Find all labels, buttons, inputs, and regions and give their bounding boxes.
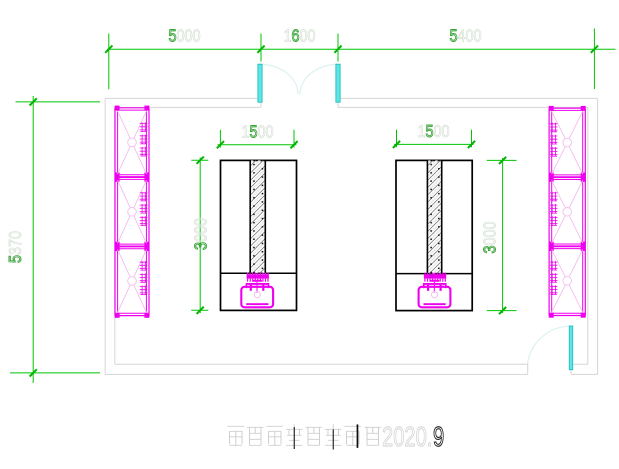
svg-text:5: 5	[250, 122, 258, 142]
svg-text:2020.: 2020.	[382, 422, 432, 453]
svg-text:0: 0	[193, 26, 201, 46]
svg-text:0: 0	[191, 218, 211, 226]
svg-text:0: 0	[308, 26, 316, 46]
svg-text:5: 5	[426, 122, 434, 142]
svg-text:0: 0	[434, 122, 442, 142]
svg-text:4: 4	[458, 26, 466, 46]
svg-text:3: 3	[191, 242, 211, 250]
svg-text:1: 1	[418, 122, 426, 142]
svg-text:5: 5	[169, 26, 177, 46]
svg-text:5: 5	[6, 255, 26, 263]
svg-text:1: 1	[242, 122, 250, 142]
svg-text:0: 0	[177, 26, 185, 46]
svg-text:0: 0	[185, 26, 193, 46]
svg-text:7: 7	[6, 239, 26, 247]
svg-text:5: 5	[450, 26, 458, 46]
svg-text:0: 0	[442, 122, 450, 142]
svg-text:0: 0	[6, 231, 26, 239]
svg-text:0: 0	[258, 122, 266, 142]
svg-text:9: 9	[433, 422, 444, 453]
svg-text:3: 3	[480, 245, 500, 253]
svg-text:0: 0	[480, 237, 500, 245]
svg-text:6: 6	[292, 26, 300, 46]
svg-text:0: 0	[480, 229, 500, 237]
svg-text:0: 0	[474, 26, 482, 46]
svg-text:1: 1	[284, 26, 292, 46]
svg-text:0: 0	[266, 122, 274, 142]
svg-text:3: 3	[6, 247, 26, 255]
svg-text:0: 0	[191, 234, 211, 242]
svg-text:0: 0	[300, 26, 308, 46]
svg-text:0: 0	[480, 221, 500, 229]
svg-text:0: 0	[466, 26, 474, 46]
svg-text:0: 0	[191, 226, 211, 234]
